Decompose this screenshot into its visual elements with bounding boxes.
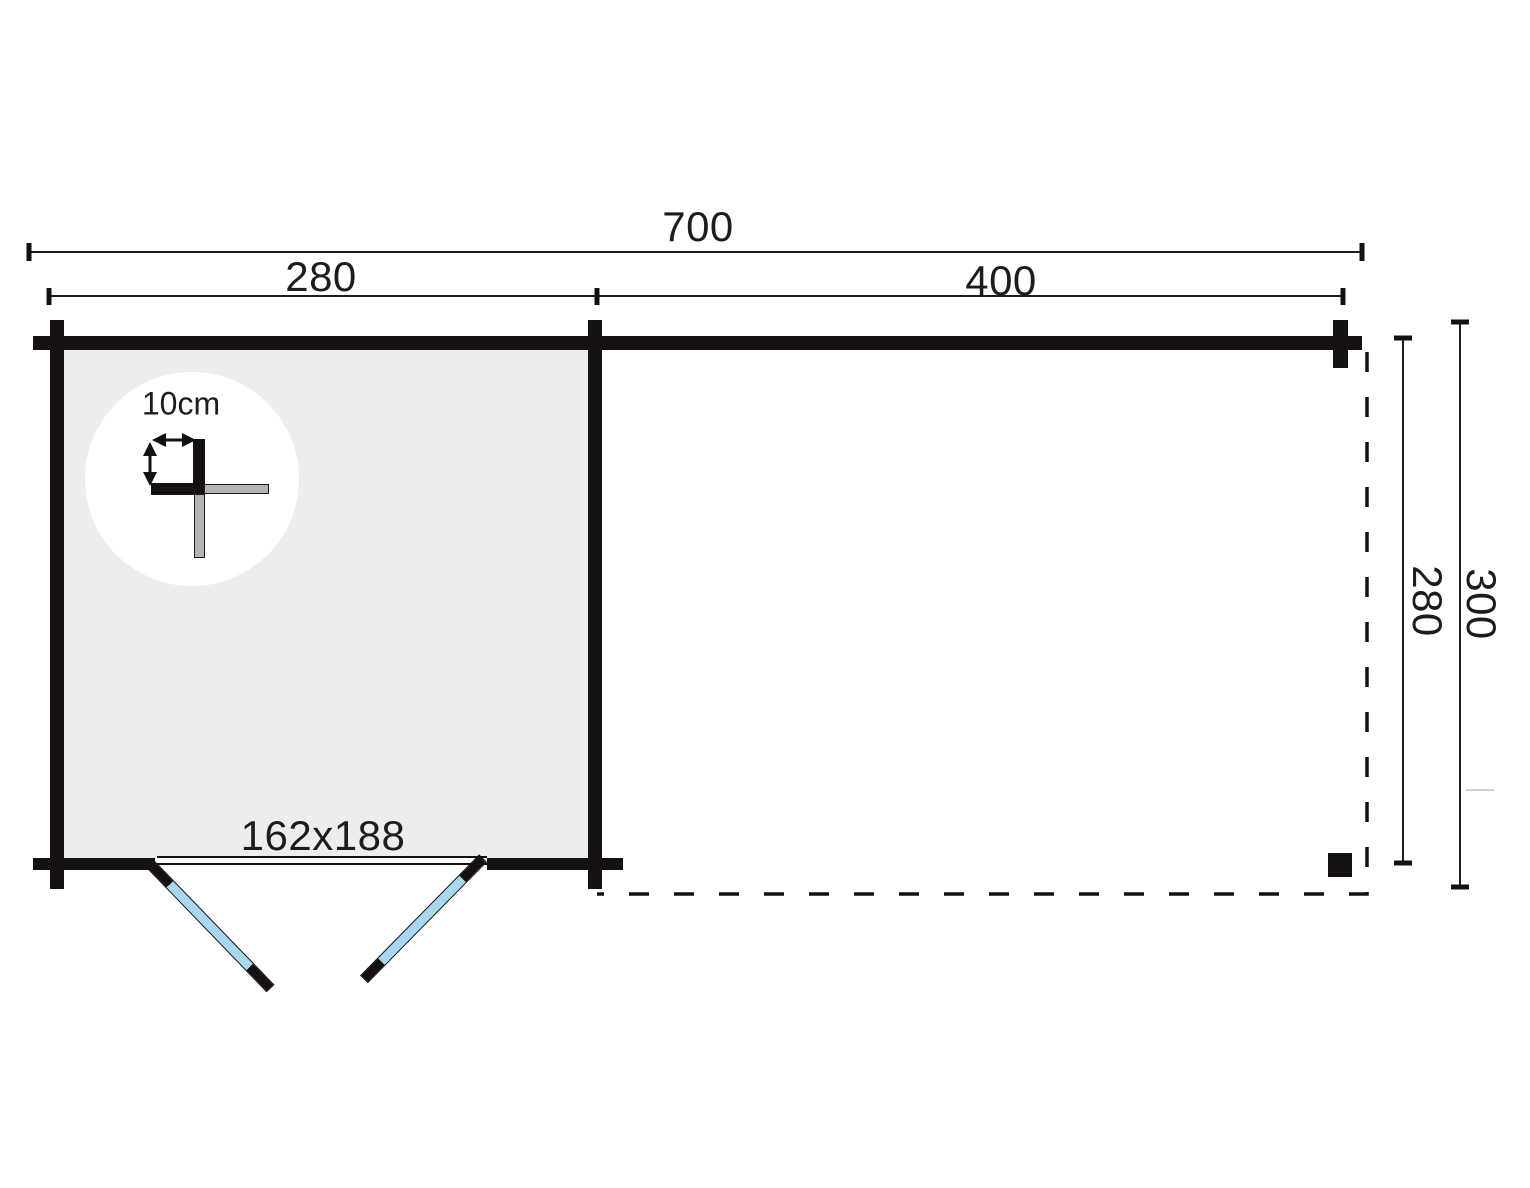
back-wall [33,336,1362,350]
front-wall-right-segment [487,858,623,870]
dimension-cabin-width: 280 [285,253,357,301]
canopy-corner-post-bottom [1328,853,1352,877]
canopy-corner-post-top [1333,320,1348,368]
dimension-total-width: 700 [662,203,734,251]
door-size-label: 162x188 [241,812,406,860]
front-wall-left-segment [33,858,155,870]
door-leaf-left [147,861,274,992]
detail-wall-horizontal-gray [204,484,269,494]
dimension-inner-depth: 280 [1403,565,1451,637]
wall-thickness-label: 10cm [142,386,220,423]
floorplan-canvas: 700 280 400 280 300 162x188 10cm [0,0,1530,1188]
dimension-total-depth: 300 [1457,568,1505,640]
left-wall [50,320,64,889]
dimension-canopy-width: 400 [965,257,1037,305]
door-leaf-right [360,854,487,983]
detail-wall-vertical-gray [194,494,205,558]
cabin-right-wall [588,320,602,889]
